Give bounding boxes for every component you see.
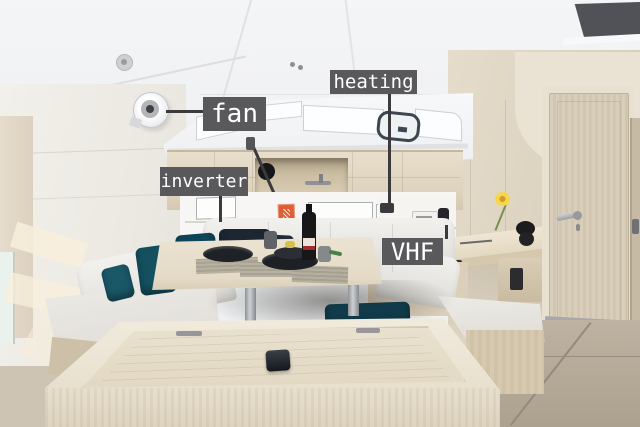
remote-control [265, 349, 290, 372]
door-handle-base [573, 211, 582, 220]
heating-label: heating [330, 70, 417, 94]
wine-bottle-label-band [303, 246, 315, 250]
second-door-handle [632, 219, 639, 234]
table-hinge [356, 328, 380, 333]
heating-thermostat [380, 203, 394, 213]
hull-window [196, 196, 236, 219]
vhf-label: VHF [382, 238, 443, 265]
porthole-latch [398, 127, 407, 133]
ceiling-vent-round-center [121, 59, 127, 65]
flower-vase [519, 232, 534, 246]
annotated-photo: fan heating inverter VHF [0, 0, 640, 427]
shelf-bottle [319, 174, 323, 183]
table-leg [245, 288, 256, 322]
vhf-leader-line [445, 225, 448, 239]
door-keyhole [576, 224, 580, 231]
table-front-grain [45, 388, 500, 427]
wine-bottle [302, 212, 316, 260]
heating-leader-line [388, 93, 391, 205]
skylight-window [415, 109, 462, 142]
inverter-label: inverter [160, 167, 248, 196]
wine-bottle-neck [306, 204, 312, 214]
skylight-window [303, 105, 384, 135]
flower-bloom [495, 192, 510, 206]
inverter-leader-line [219, 195, 222, 222]
table-hinge [176, 331, 202, 336]
garnish [285, 241, 295, 248]
fan-hub [146, 105, 154, 113]
table-leg [348, 285, 359, 316]
cup [318, 246, 331, 262]
thermos [264, 231, 277, 249]
fan-leader-line [166, 110, 203, 113]
shelf-items [305, 181, 331, 185]
ceiling-light [290, 62, 295, 67]
folding-table [40, 316, 505, 427]
soap-dispenser [510, 268, 523, 290]
dinner-plate [203, 246, 253, 262]
pole-fitting [246, 137, 255, 150]
fan-label: fan [203, 97, 266, 131]
